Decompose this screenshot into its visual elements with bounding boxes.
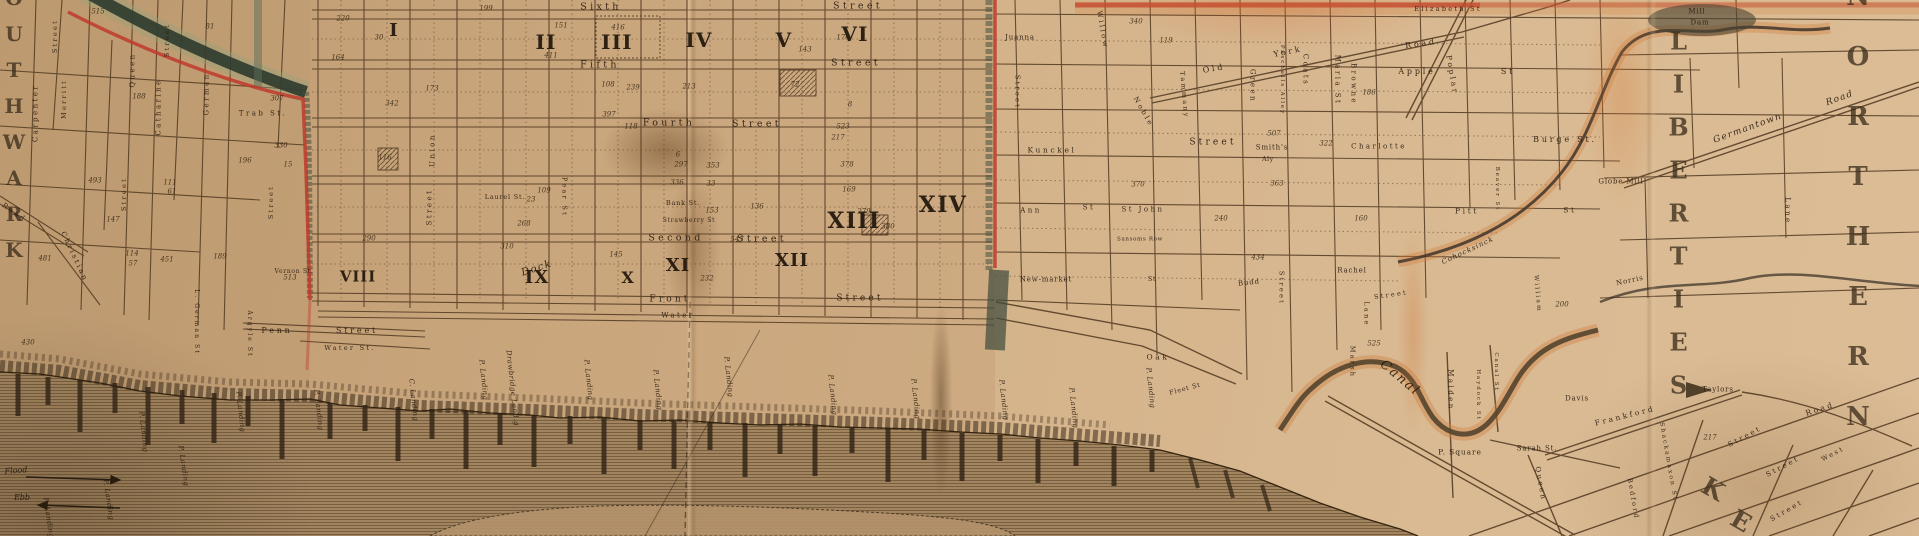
lot-number: 515 bbox=[91, 9, 104, 16]
lot-number: 340 bbox=[1129, 19, 1142, 26]
place-label: Budd bbox=[1238, 278, 1261, 287]
lot-number: 118 bbox=[624, 124, 637, 131]
lot-number: 176 bbox=[836, 35, 849, 42]
street-label: Maria St bbox=[1334, 55, 1341, 106]
lot-number: 169 bbox=[842, 187, 855, 194]
district-name: NORTHERN bbox=[1845, 0, 1871, 462]
place-label: Bank St. bbox=[666, 200, 700, 207]
street-label: Christian bbox=[59, 231, 89, 284]
street-label: Browne bbox=[1350, 63, 1357, 105]
street-label: Union bbox=[430, 133, 437, 167]
place-label: P. Square bbox=[1438, 448, 1482, 456]
street-label: St bbox=[1083, 205, 1096, 212]
lot-number: 411 bbox=[544, 53, 557, 60]
ward-numeral: V bbox=[776, 30, 793, 50]
street-label: West bbox=[1820, 445, 1845, 462]
street-label: Sixth bbox=[580, 2, 621, 12]
street-label: Paschalls Alley bbox=[1278, 45, 1284, 115]
street-label: Street bbox=[1374, 289, 1409, 300]
lot-number: 160 bbox=[1354, 216, 1367, 223]
lot-number: 279 bbox=[857, 209, 870, 216]
place-label: Strawberry St bbox=[663, 218, 715, 224]
landing-label: P. Landing bbox=[477, 359, 488, 400]
street-label: Street bbox=[1769, 499, 1804, 523]
street-label: Street bbox=[164, 23, 171, 57]
street-label: Street bbox=[737, 234, 787, 244]
ward-numeral: III bbox=[601, 32, 633, 52]
lot-number: 111 bbox=[163, 180, 176, 187]
district-name: LIBERTIES bbox=[1666, 27, 1690, 414]
street-label: Water bbox=[661, 313, 694, 320]
landing-label: P. Landing bbox=[1144, 367, 1155, 408]
lot-number: 114 bbox=[125, 251, 138, 258]
lot-number: 493 bbox=[88, 178, 101, 185]
district-name: SOUTHWARK bbox=[4, 0, 24, 274]
street-label: Pitt bbox=[1455, 207, 1479, 215]
landing-label: P. Landing bbox=[1067, 387, 1078, 428]
lot-number: 363 bbox=[1270, 181, 1283, 188]
lot-number: 297 bbox=[674, 162, 687, 169]
street-label: Street bbox=[268, 185, 275, 219]
landing-label: P. Landing bbox=[102, 479, 115, 521]
lot-number: 164 bbox=[331, 55, 344, 62]
street-label: Street bbox=[52, 19, 59, 53]
street-label: Queen bbox=[130, 52, 137, 87]
street-label: Road bbox=[1405, 38, 1438, 50]
street-label: Street bbox=[831, 58, 881, 68]
street-label: Road bbox=[1805, 401, 1836, 417]
lot-number: 147 bbox=[106, 217, 119, 224]
lot-number: 353 bbox=[706, 163, 719, 170]
street-label: Street bbox=[732, 119, 782, 129]
lot-number: 81 bbox=[206, 24, 215, 31]
lot-number: 188 bbox=[132, 94, 145, 101]
place-label: Laurel St. bbox=[485, 194, 525, 201]
district-name: K bbox=[1697, 473, 1728, 506]
landing-label: P. Landing bbox=[651, 369, 662, 410]
district-name: E bbox=[1726, 505, 1755, 536]
street-label: Front bbox=[649, 296, 690, 305]
street-label: Street bbox=[1014, 75, 1021, 109]
place-label: Globe Mill bbox=[1598, 179, 1643, 186]
lot-number: 547 bbox=[730, 237, 743, 244]
landing-label: P. Landing bbox=[826, 374, 837, 415]
street-label: Charlotte bbox=[1351, 144, 1407, 151]
lot-number: 33 bbox=[707, 181, 716, 188]
lot-number: 481 bbox=[38, 256, 51, 263]
place-label: Aly bbox=[1262, 157, 1274, 163]
lot-number: 8 bbox=[848, 102, 852, 109]
lot-number: 416 bbox=[611, 25, 624, 32]
lot-number: 523 bbox=[836, 124, 849, 131]
street-label: Lane bbox=[1363, 301, 1370, 326]
lot-number: 199 bbox=[479, 6, 492, 13]
street-label: Fourth bbox=[643, 118, 695, 128]
label-layer: Flood Ebb SOUTHWARKNORTHERNLIBERTIESKEII… bbox=[0, 0, 1919, 536]
lot-number: 430 bbox=[21, 340, 34, 347]
street-label: Water St. bbox=[324, 345, 375, 352]
lot-number: 380 bbox=[881, 224, 894, 231]
lot-number: 116 bbox=[378, 155, 391, 162]
street-label: Argyle St bbox=[246, 310, 252, 357]
street-label: Street bbox=[833, 1, 883, 11]
lot-number: 240 bbox=[1214, 216, 1227, 223]
ward-numeral: I bbox=[389, 22, 399, 40]
lot-number: 232 bbox=[700, 276, 713, 283]
street-label: Catharine bbox=[156, 78, 163, 135]
place-label: Rachel bbox=[1337, 268, 1366, 275]
flood-tide-label: Flood bbox=[4, 466, 27, 476]
lot-number: 108 bbox=[601, 82, 614, 89]
ward-numeral: VIII bbox=[340, 270, 376, 285]
street-label: Street bbox=[121, 177, 128, 211]
street-label: St bbox=[1563, 206, 1576, 214]
place-label: New-market bbox=[1020, 277, 1072, 284]
place-label: St bbox=[1148, 276, 1157, 283]
street-label: Carpenter bbox=[33, 84, 40, 142]
lot-number: 451 bbox=[160, 257, 173, 264]
place-label: Fleet St bbox=[1169, 382, 1202, 397]
landing-label: P. Landing bbox=[582, 359, 593, 400]
ward-numeral: XIII bbox=[827, 210, 880, 232]
lot-number: 151 bbox=[554, 23, 567, 30]
street-label: L. German St bbox=[193, 289, 199, 355]
street-label: Beaver St bbox=[1493, 167, 1499, 212]
street-label: Fifth bbox=[580, 60, 620, 70]
lot-number: 119 bbox=[1159, 38, 1172, 45]
lot-number: 213 bbox=[682, 84, 695, 91]
lot-number: 336 bbox=[670, 180, 683, 187]
place-label: Davis bbox=[1565, 396, 1589, 403]
lot-number: 322 bbox=[1319, 141, 1332, 148]
lot-number: 290 bbox=[362, 236, 375, 243]
lot-number: 109 bbox=[537, 188, 550, 195]
lot-number: 220 bbox=[336, 16, 349, 23]
street-label: Apple bbox=[1398, 68, 1435, 76]
lot-number: 143 bbox=[798, 47, 811, 54]
lot-number: 513 bbox=[283, 275, 296, 282]
street-label: Street bbox=[836, 295, 883, 304]
lot-number: 15 bbox=[284, 162, 293, 169]
ward-numeral: IV bbox=[685, 30, 712, 50]
street-label: Kunckel bbox=[1027, 146, 1076, 154]
landing-label: C. Landing bbox=[407, 378, 418, 421]
street-label: Shackamaxon St bbox=[1658, 422, 1678, 502]
place-label: Taylors bbox=[1702, 387, 1734, 394]
street-label: Merritt bbox=[61, 79, 68, 119]
street-label: Marsh bbox=[1349, 346, 1356, 379]
landing-label: P. Landing bbox=[722, 356, 733, 397]
map-canvas: Flood Ebb SOUTHWARKNORTHERNLIBERTIESKEII… bbox=[0, 0, 1919, 536]
lot-number: 268 bbox=[517, 221, 530, 228]
street-label: Oak bbox=[1146, 353, 1169, 361]
lot-number: 196 bbox=[238, 158, 251, 165]
street-label: Poplar bbox=[1445, 55, 1459, 96]
lot-number: 310 bbox=[500, 244, 513, 251]
lot-number: 72 bbox=[791, 82, 800, 89]
place-label: Sansoms Row bbox=[1117, 237, 1163, 243]
lot-number: 239 bbox=[626, 85, 639, 92]
street-label: Street bbox=[1727, 425, 1763, 448]
street-label: Street bbox=[1765, 455, 1801, 478]
street-label: Tammany bbox=[1179, 71, 1190, 119]
street-label: Elizabeth St bbox=[1414, 6, 1481, 13]
lot-number: 330 bbox=[274, 143, 287, 150]
street-label: Street bbox=[427, 189, 434, 226]
street-label: Green bbox=[1249, 69, 1256, 103]
ward-numeral: XI bbox=[666, 257, 691, 275]
lot-number: 397 bbox=[602, 112, 615, 119]
lot-number: 378 bbox=[840, 162, 853, 169]
lot-number: 217 bbox=[1703, 435, 1716, 442]
street-label: Coats bbox=[1302, 54, 1309, 86]
ward-numeral: II bbox=[535, 32, 556, 52]
landing-label: P. Landing bbox=[909, 378, 920, 419]
lot-number: 434 bbox=[1251, 255, 1264, 262]
lot-number: 217 bbox=[831, 135, 844, 142]
street-label: Second bbox=[648, 233, 703, 243]
script-label: Germantown bbox=[1712, 112, 1783, 145]
place-label: Juanna bbox=[1005, 35, 1035, 42]
street-label: Frankford bbox=[1594, 405, 1656, 427]
landing-label: P. Landing bbox=[177, 445, 190, 487]
place-label: Norris bbox=[1616, 275, 1645, 288]
street-label: Willow bbox=[1095, 10, 1109, 49]
street-label: Queen bbox=[1533, 466, 1546, 502]
street-label: Bedford bbox=[1626, 478, 1640, 521]
place-label: Mill bbox=[1688, 9, 1705, 16]
street-label: St bbox=[1501, 68, 1515, 76]
lot-number: 507 bbox=[1267, 131, 1280, 138]
lot-number: 186 bbox=[1362, 90, 1375, 97]
landing-label: P. Landing bbox=[137, 411, 148, 452]
street-label: Canal St bbox=[1492, 352, 1498, 391]
lot-number: 173 bbox=[425, 86, 438, 93]
lot-number: 145 bbox=[609, 252, 622, 259]
street-label: Haydock St bbox=[1474, 369, 1480, 420]
script-label: Canal bbox=[1378, 358, 1423, 399]
script-label: Cohocksinck bbox=[1441, 236, 1495, 266]
street-label: Penn bbox=[261, 327, 292, 335]
landing-label: P. Landing bbox=[234, 391, 245, 432]
ward-numeral: XIV bbox=[919, 194, 967, 216]
street-label: Old bbox=[1202, 63, 1226, 75]
lot-number: 307 bbox=[270, 96, 283, 103]
street-label: Maiden bbox=[1447, 369, 1454, 410]
street-label: Street bbox=[1278, 271, 1285, 305]
street-label: Pear St bbox=[561, 177, 568, 217]
lot-number: 200 bbox=[1555, 302, 1568, 309]
lot-number: 342 bbox=[385, 101, 398, 108]
street-label: Lane bbox=[1784, 197, 1791, 224]
street-label: St John bbox=[1121, 207, 1164, 214]
place-label: Dam bbox=[1691, 20, 1710, 27]
lot-number: 61 bbox=[168, 189, 177, 196]
lot-number: 525 bbox=[1367, 341, 1380, 348]
lot-number: 153 bbox=[705, 208, 718, 215]
lot-number: 136 bbox=[750, 204, 763, 211]
street-label: Noble bbox=[1132, 96, 1155, 128]
street-label: William bbox=[1532, 275, 1541, 313]
place-label: Smith's bbox=[1256, 145, 1288, 152]
street-label: Street bbox=[1189, 139, 1236, 148]
lot-number: 57 bbox=[129, 261, 138, 268]
ebb-tide-label: Ebb bbox=[14, 494, 30, 502]
ward-numeral: X bbox=[621, 270, 634, 286]
landing-label: P. Landing bbox=[997, 379, 1008, 420]
street-label: German bbox=[204, 72, 211, 115]
street-label: Burge St. bbox=[1533, 136, 1597, 144]
street-label: Ann bbox=[1020, 208, 1041, 215]
landing-label: Drawbridge Land.g bbox=[505, 350, 520, 427]
street-label: Trab St. bbox=[239, 111, 287, 118]
street-label: Street bbox=[336, 327, 378, 335]
lot-number: 6 bbox=[676, 152, 680, 159]
lot-number: 23 bbox=[527, 197, 536, 204]
landing-label: P. Landing bbox=[312, 389, 323, 430]
lot-number: 30 bbox=[375, 35, 384, 42]
place-label: Sarah St. bbox=[1517, 446, 1558, 453]
ward-numeral: XII bbox=[775, 252, 809, 270]
lot-number: 370 bbox=[1131, 182, 1144, 189]
lot-number: 189 bbox=[213, 254, 226, 261]
landing-label: P. Landing bbox=[42, 497, 55, 536]
